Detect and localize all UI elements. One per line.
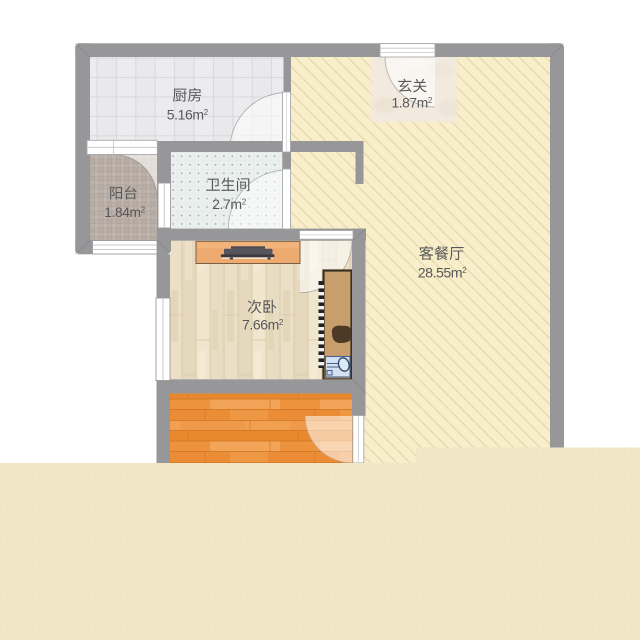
- svg-text:5.16m2: 5.16m2: [167, 106, 209, 122]
- svg-text:1.84m2: 1.84m2: [104, 205, 145, 220]
- svg-text:28.55m2: 28.55m2: [418, 265, 467, 281]
- svg-text:1.87m2: 1.87m2: [391, 96, 432, 111]
- svg-text:2.7m2: 2.7m2: [212, 196, 247, 212]
- svg-text:7.66m2: 7.66m2: [242, 317, 284, 333]
